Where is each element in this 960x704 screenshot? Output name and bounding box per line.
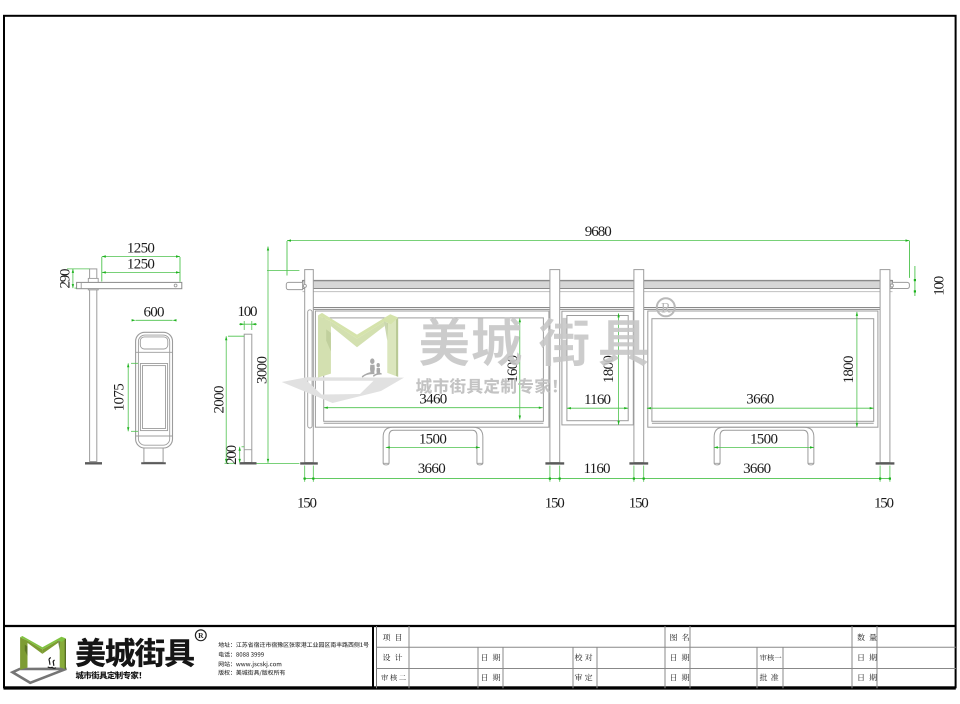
- svg-text:R: R: [198, 631, 204, 640]
- svg-text:2000: 2000: [212, 386, 228, 414]
- svg-text:3660: 3660: [743, 461, 771, 477]
- svg-text:150: 150: [874, 496, 894, 512]
- svg-text:1250: 1250: [127, 241, 155, 257]
- svg-text:3000: 3000: [254, 356, 270, 384]
- svg-text:600: 600: [144, 305, 165, 321]
- svg-text:1075: 1075: [112, 383, 128, 411]
- svg-text:3660: 3660: [746, 392, 774, 408]
- svg-text:9680: 9680: [585, 224, 612, 240]
- svg-text:150: 150: [629, 496, 649, 512]
- svg-text:R: R: [661, 301, 671, 317]
- svg-text:1500: 1500: [419, 431, 447, 447]
- svg-text:1250: 1250: [127, 257, 155, 273]
- svg-text:100: 100: [932, 276, 948, 296]
- svg-text:200: 200: [224, 445, 240, 465]
- svg-text:3460: 3460: [419, 392, 447, 408]
- svg-text:100: 100: [238, 304, 258, 320]
- svg-text:290: 290: [58, 269, 74, 289]
- svg-text:150: 150: [297, 496, 317, 512]
- svg-text:1160: 1160: [584, 392, 611, 408]
- svg-text:3660: 3660: [418, 461, 446, 477]
- svg-text:1800: 1800: [841, 356, 857, 384]
- svg-text:150: 150: [545, 496, 565, 512]
- svg-text:1160: 1160: [584, 461, 611, 477]
- svg-text:1500: 1500: [750, 431, 778, 447]
